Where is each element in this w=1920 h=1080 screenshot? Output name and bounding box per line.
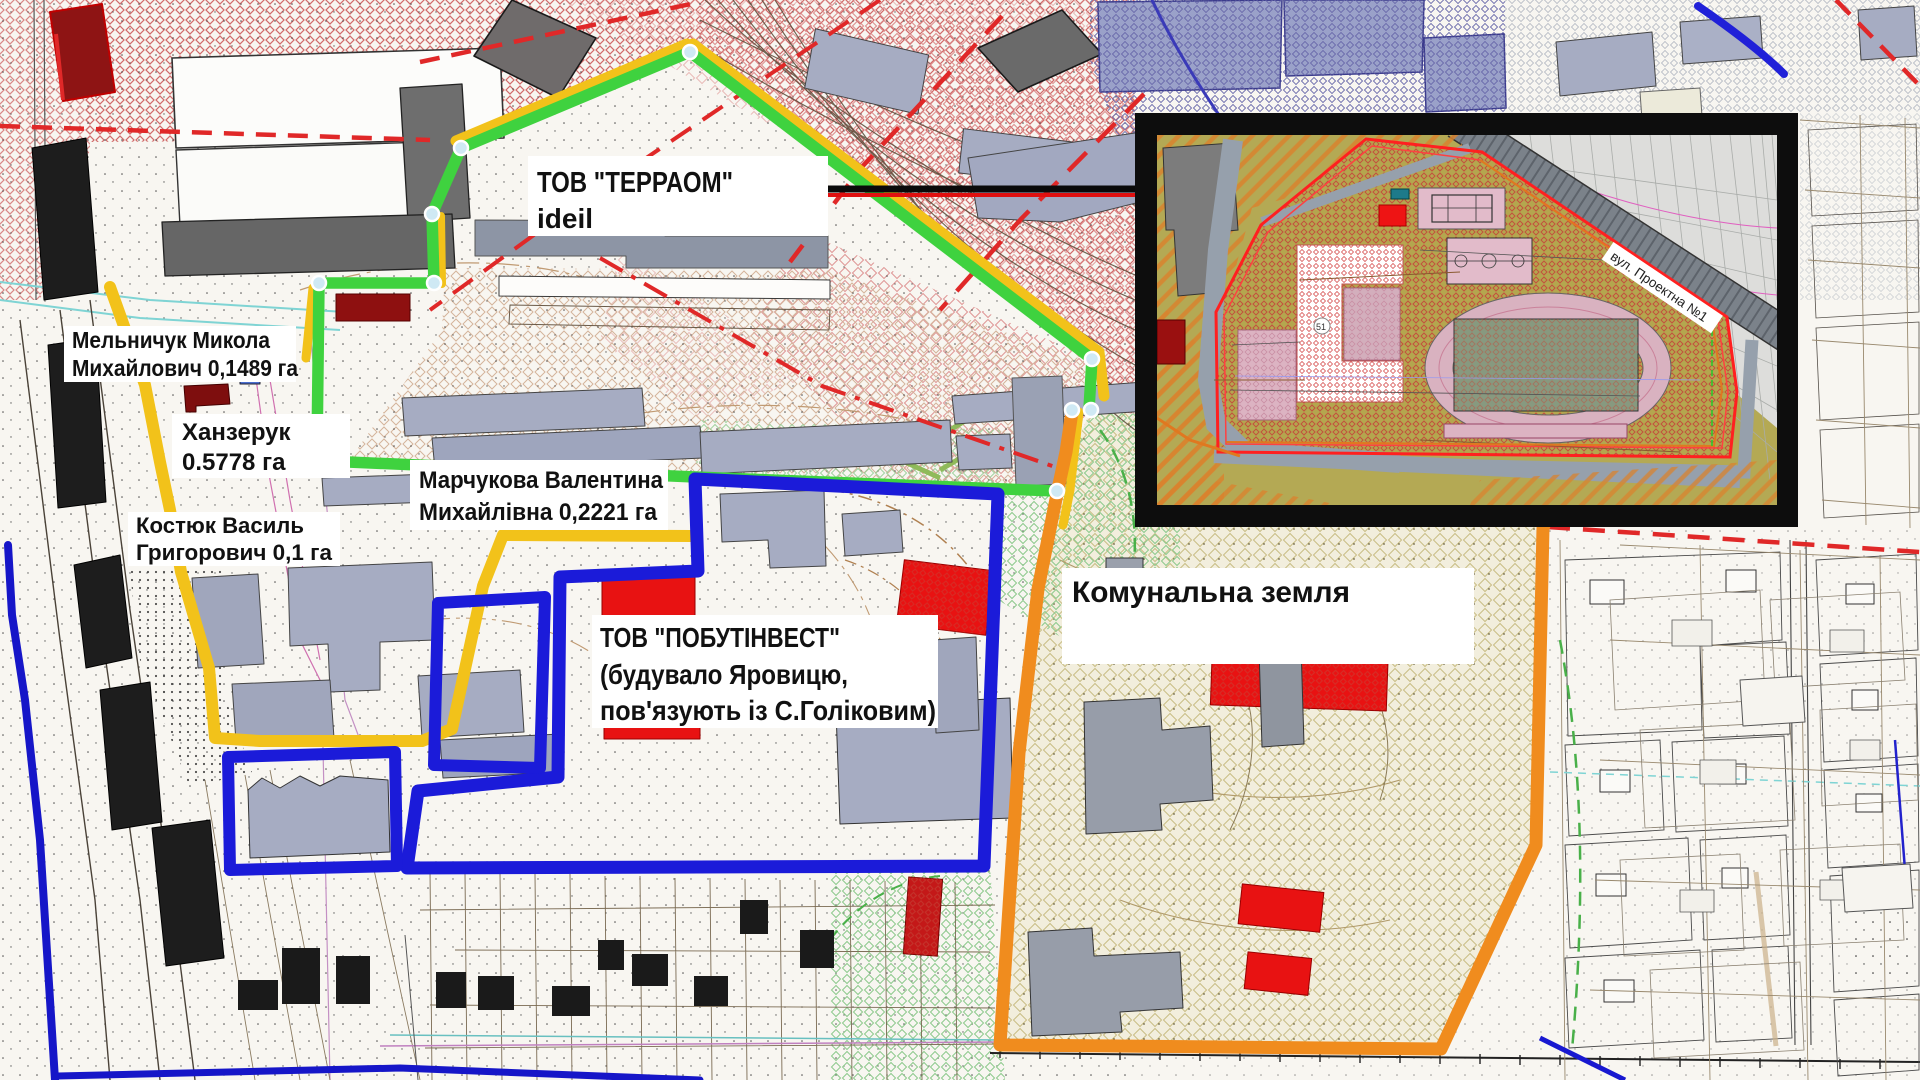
svg-text:Мельничук Микола: Мельничук Микола: [72, 327, 270, 353]
svg-text:ideil: ideil: [537, 203, 593, 234]
svg-text:51: 51: [1316, 322, 1326, 332]
svg-text:Михайлівна 0,2221 га: Михайлівна 0,2221 га: [419, 499, 658, 526]
svg-text:ТОВ "ТЕРРАОМ": ТОВ "ТЕРРАОМ": [537, 167, 733, 199]
svg-text:Григорович 0,1 га: Григорович 0,1 га: [136, 540, 333, 565]
svg-text:Костюк Василь: Костюк Василь: [136, 513, 304, 538]
svg-text:Марчукова Валентина: Марчукова Валентина: [419, 467, 664, 494]
svg-text:Комунальна земля: Комунальна земля: [1072, 576, 1350, 609]
svg-text:Ханзерук: Ханзерук: [182, 419, 292, 446]
svg-text:(будувало Яровицю,: (будувало Яровицю,: [600, 659, 848, 690]
svg-text:0.5778 га: 0.5778 га: [182, 449, 286, 476]
svg-text:Михайлович 0,1489 га: Михайлович 0,1489 га: [72, 355, 298, 381]
svg-text:ТОВ "ПОБУТІНВЕСТ": ТОВ "ПОБУТІНВЕСТ": [600, 622, 840, 653]
svg-text:пов'язують із С.Голіковим): пов'язують із С.Голіковим): [600, 695, 936, 726]
